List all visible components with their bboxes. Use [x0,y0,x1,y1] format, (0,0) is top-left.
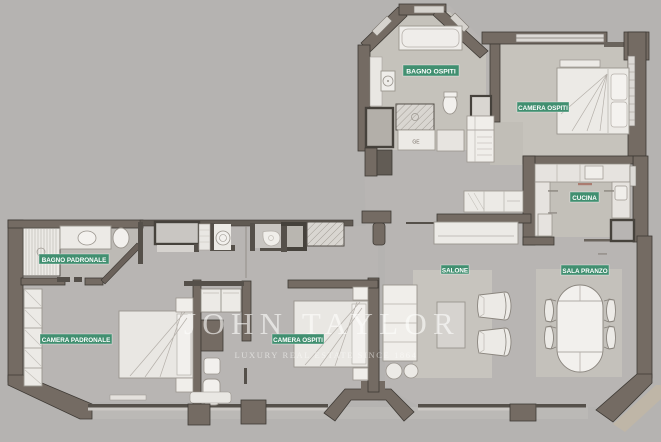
svg-text:CAMERA OSPITI: CAMERA OSPITI [518,105,568,112]
svg-text:CAMERA OSPITI: CAMERA OSPITI [273,337,323,344]
svg-text:CUCINA: CUCINA [572,195,597,202]
svg-text:SALA PRANZO: SALA PRANZO [562,268,607,275]
svg-text:GE: GE [412,140,420,146]
svg-text:BAGNO PADRONALE: BAGNO PADRONALE [42,257,107,264]
svg-text:BAGNO OSPITI: BAGNO OSPITI [406,69,456,76]
svg-text:CAMERA PADRONALE: CAMERA PADRONALE [42,337,111,344]
svg-text:SALONE: SALONE [442,268,468,275]
svg-text:LUXURY REAL ESTATE SINCE 1864: LUXURY REAL ESTATE SINCE 1864 [235,350,418,360]
